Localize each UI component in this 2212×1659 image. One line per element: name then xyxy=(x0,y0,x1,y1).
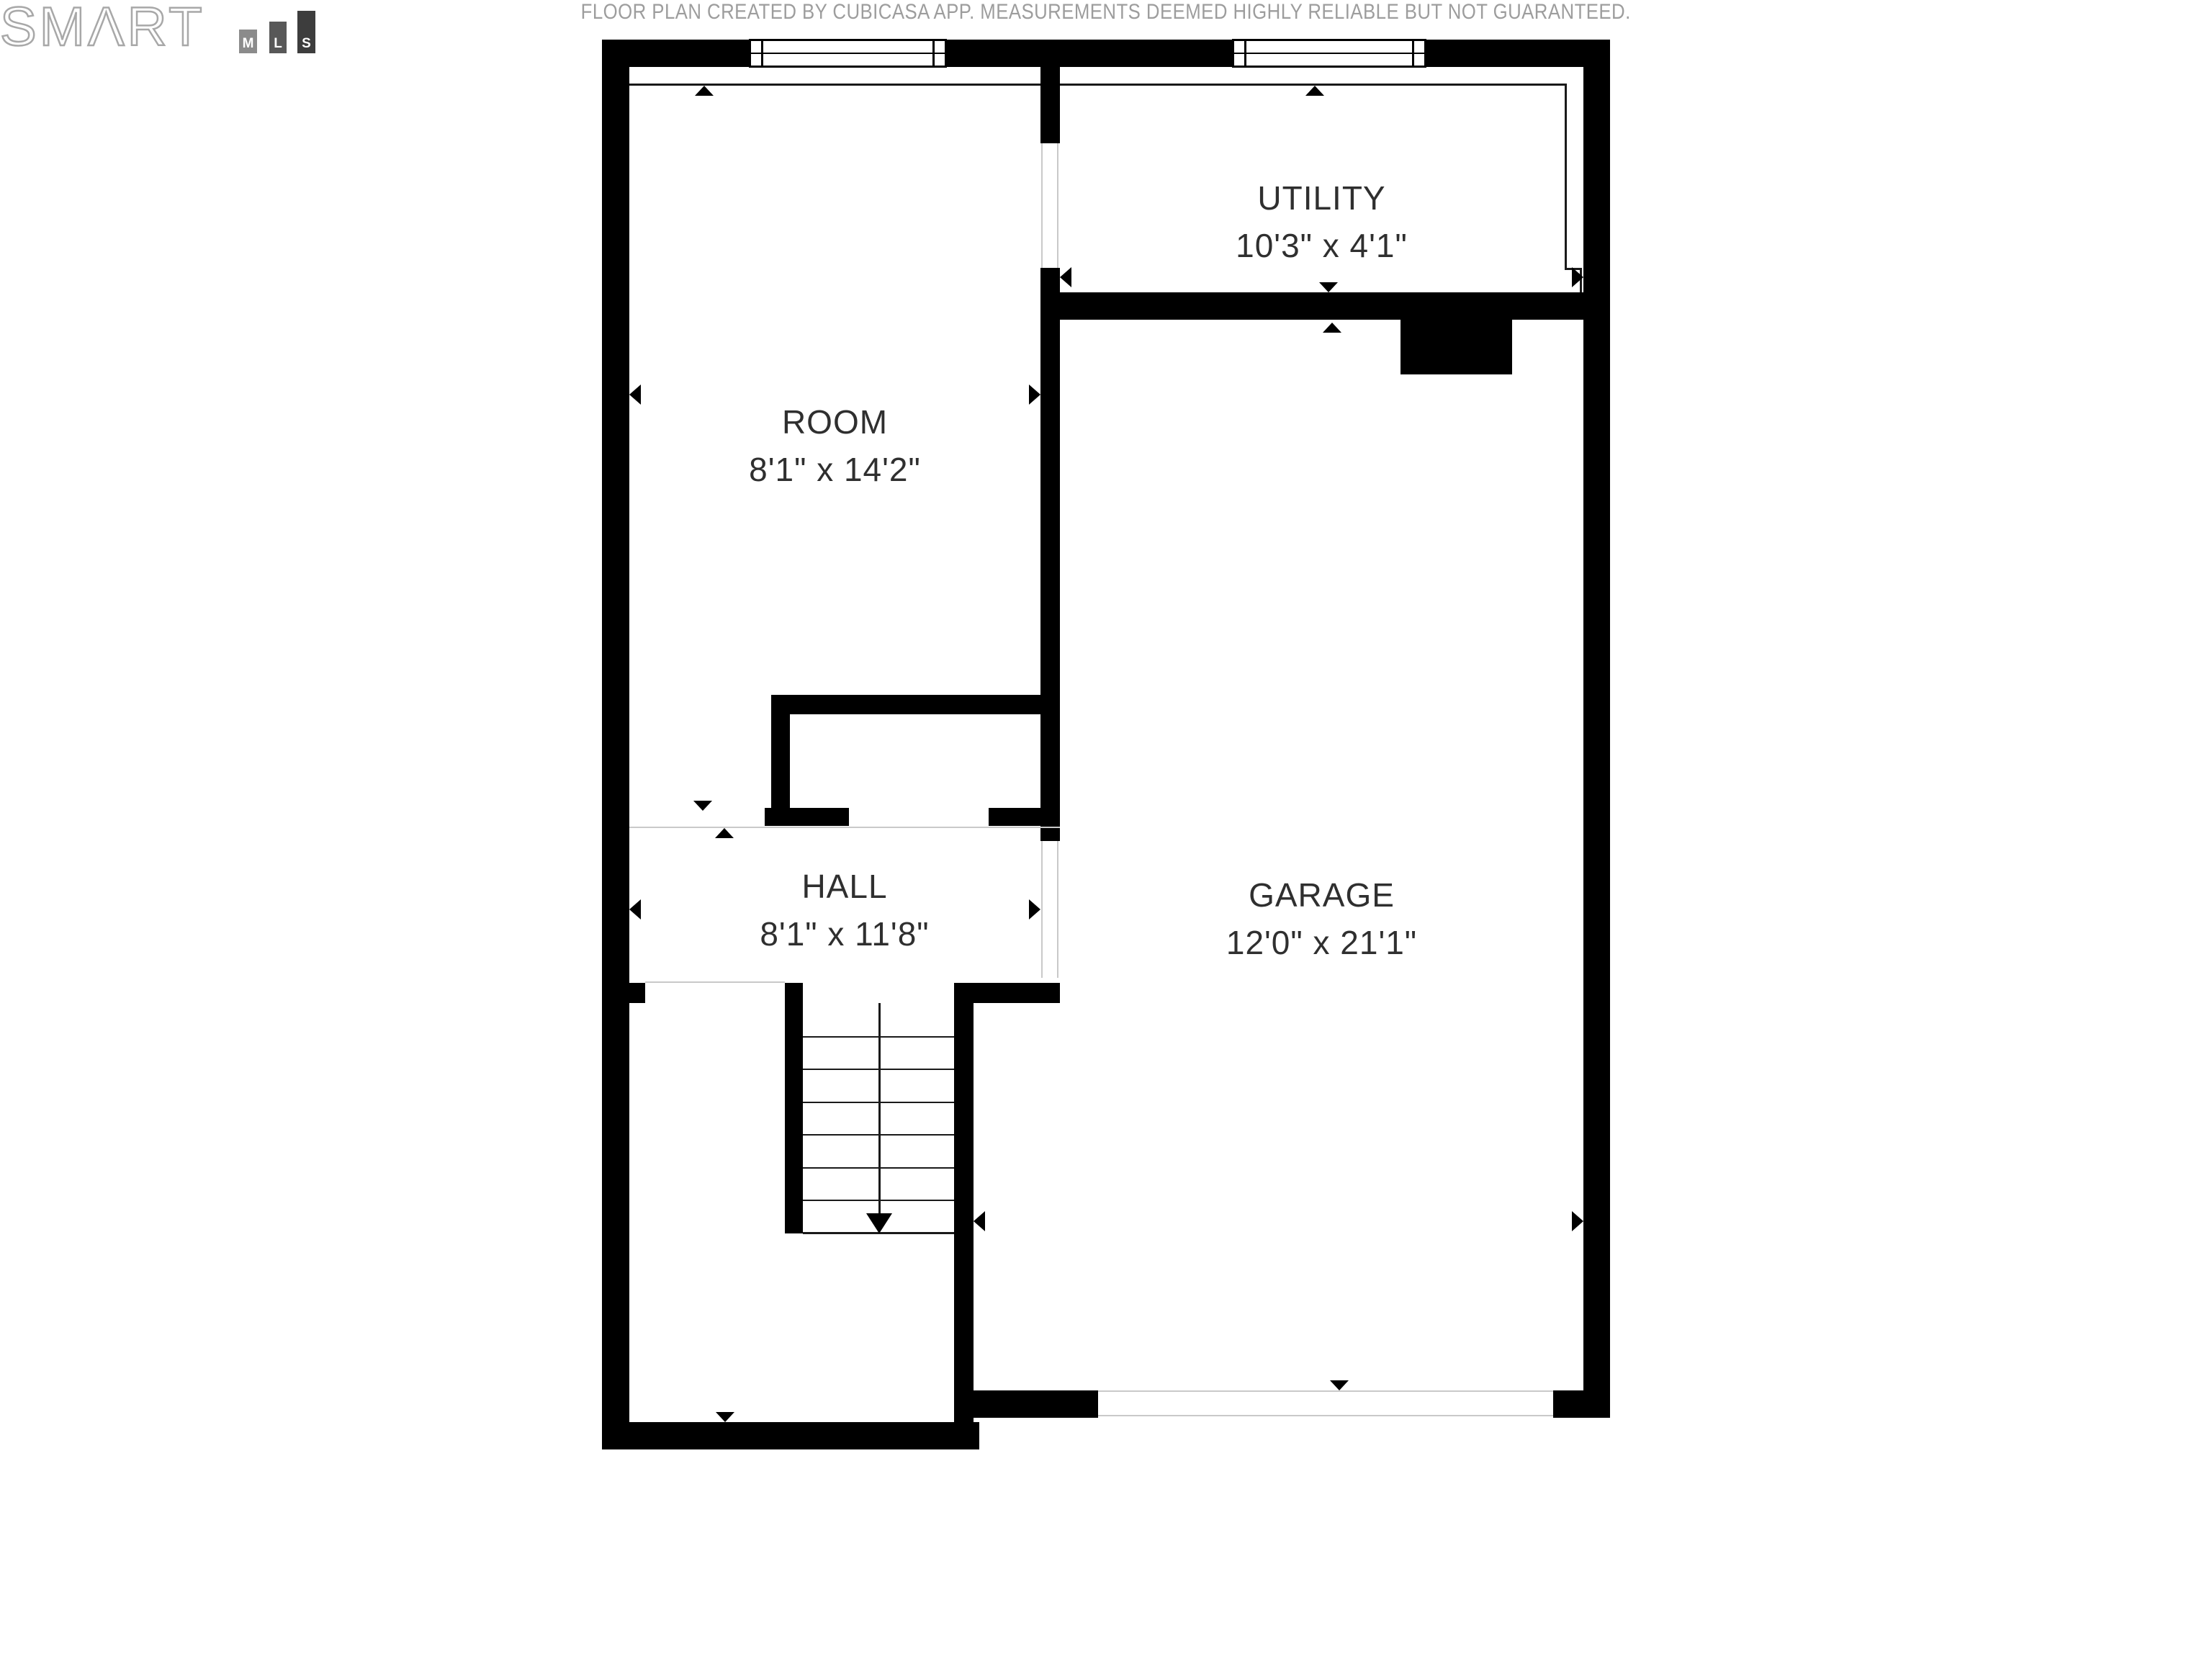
room-dims: 12'0" x 21'1" xyxy=(1060,919,1583,966)
wall-garage-bottom-left xyxy=(974,1390,1098,1418)
wall-exterior-right xyxy=(1583,40,1610,1418)
arrow-down-icon-garage-height xyxy=(1330,1380,1349,1390)
room-dims: 8'1" x 14'2" xyxy=(629,446,1040,493)
window-pane-line xyxy=(751,53,945,54)
wall-stair-right xyxy=(954,983,974,1422)
window-pane-line xyxy=(1234,53,1424,54)
window-frame-cap xyxy=(932,41,935,66)
window-frame-cap xyxy=(1244,41,1246,66)
wall-hall-jamb-left xyxy=(626,983,645,1003)
arrow-up-icon-garage-height xyxy=(1323,323,1341,333)
logo-bar-m: M xyxy=(239,30,257,53)
floor-plan-page: ROOM 8'1" x 14'2" UTILITY 10'3" x 4'1" H… xyxy=(0,0,2212,1659)
logo-bar-l: L xyxy=(269,22,287,53)
arrow-right-icon-utility-width xyxy=(1572,267,1583,287)
room-label-hall: HALL 8'1" x 11'8" xyxy=(629,863,1060,958)
smartmls-wordmark: SMΛRT xyxy=(0,0,205,55)
window-frame-cap xyxy=(1412,41,1414,66)
room-name: ROOM xyxy=(629,398,1040,446)
room-label-garage: GARAGE 12'0" x 21'1" xyxy=(1060,871,1583,966)
arrow-up-icon-room-hall xyxy=(715,828,734,838)
room-name: HALL xyxy=(629,863,1060,910)
logo-bar-letter: L xyxy=(274,36,282,52)
garage-door-line-bottom xyxy=(1098,1415,1553,1416)
arrow-left-icon-garage-width xyxy=(974,1211,985,1231)
wall-garage-stub xyxy=(1401,320,1512,374)
room-dims: 10'3" x 4'1" xyxy=(1060,222,1583,269)
logo-bar-letter: M xyxy=(243,36,254,52)
line-room-ceiling xyxy=(629,84,1040,86)
logo-bar-letter: S xyxy=(302,36,311,52)
arrow-right-icon-garage-width xyxy=(1572,1211,1583,1231)
room-name: GARAGE xyxy=(1060,871,1583,919)
logo-bar-s: S xyxy=(297,11,315,53)
arrow-down-icon-room-hall xyxy=(693,801,712,811)
window-icon-room xyxy=(749,39,947,68)
room-name: UTILITY xyxy=(1060,174,1583,222)
stair-center-line xyxy=(878,1003,881,1213)
wall-utility-bottom xyxy=(1040,292,1610,320)
garage-door-line-top xyxy=(1098,1390,1553,1392)
arrow-down-icon-hall-bottom xyxy=(716,1412,734,1422)
room-label-utility: UTILITY 10'3" x 4'1" xyxy=(1060,174,1583,269)
wall-closet-bottom-right xyxy=(989,808,1060,826)
wall-closet-bottom-left xyxy=(765,808,849,826)
arrow-down-icon-utility-height xyxy=(1319,282,1338,292)
opening-room-utility-left xyxy=(1041,143,1043,268)
arrow-left-icon-utility-width xyxy=(1060,267,1071,287)
opening-room-utility-right xyxy=(1057,143,1058,268)
smartmls-logo: SMΛRT M L S xyxy=(0,0,331,58)
wall-divider-upper xyxy=(1040,40,1060,143)
arrow-up-icon-room-top xyxy=(695,86,714,96)
arrow-up-icon-utility-top xyxy=(1305,86,1324,96)
stairs-down-arrow-icon xyxy=(866,1213,892,1233)
wall-exterior-left xyxy=(602,40,629,1449)
line-hall-top xyxy=(629,827,1060,828)
room-label-room: ROOM 8'1" x 14'2" xyxy=(629,398,1040,493)
footer-disclaimer: FLOOR PLAN CREATED BY CUBICASA APP. MEAS… xyxy=(0,0,2212,24)
room-dims: 8'1" x 11'8" xyxy=(629,910,1060,958)
disclaimer-text: FLOOR PLAN CREATED BY CUBICASA APP. MEAS… xyxy=(581,0,1631,24)
wall-stair-left xyxy=(785,983,803,1233)
wall-bottomleft-bottom xyxy=(602,1422,979,1449)
wall-closet-left xyxy=(771,695,790,826)
window-icon-utility xyxy=(1232,39,1426,68)
window-frame-cap xyxy=(761,41,763,66)
wall-garage-bottom-right xyxy=(1553,1390,1610,1418)
wall-closet-top xyxy=(771,695,1060,714)
line-hall-bottom-threshold xyxy=(645,981,785,983)
wall-divider-mid xyxy=(1040,268,1060,841)
